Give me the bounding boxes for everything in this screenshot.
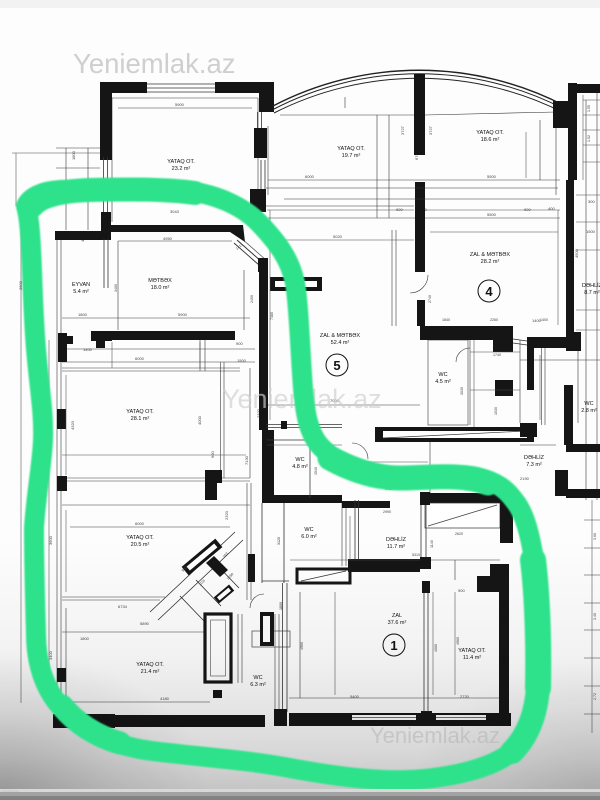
svg-text:1740: 1740 [493,353,501,357]
svg-text:2620: 2620 [455,532,463,536]
svg-text:7130: 7130 [244,455,249,465]
svg-text:6000: 6000 [135,356,145,361]
svg-text:EYVAN: EYVAN [72,282,90,288]
svg-text:4.8 m²: 4.8 m² [292,464,308,470]
svg-text:DƏHLİZ: DƏHLİZ [582,282,600,289]
svg-text:MƏTBƏX: MƏTBƏX [148,278,172,284]
svg-text:3400: 3400 [114,284,118,292]
svg-text:300: 300 [588,199,595,204]
svg-text:ZAL & MƏTBƏX: ZAL & MƏTBƏX [320,333,360,339]
svg-text:ZAL & MƏTBƏX: ZAL & MƏTBƏX [470,252,510,258]
svg-text:18.0 m²: 18.0 m² [151,285,170,291]
svg-text:WC: WC [295,457,304,463]
svg-text:900: 900 [210,451,215,458]
svg-text:3727: 3727 [428,125,433,135]
svg-text:YATAQ OT.: YATAQ OT. [167,159,195,165]
svg-text:YATAQ OT.: YATAQ OT. [126,409,154,415]
svg-text:1840: 1840 [442,318,450,322]
svg-text:7380: 7380 [270,312,274,320]
svg-text:19.7 m²: 19.7 m² [342,153,361,159]
svg-text:1540: 1540 [314,467,318,475]
svg-text:2400: 2400 [250,295,254,303]
svg-text:2990: 2990 [383,510,391,514]
svg-text:28.2 m²: 28.2 m² [481,259,500,265]
svg-text:900: 900 [236,341,243,346]
svg-text:2.8 m²: 2.8 m² [581,408,597,414]
svg-text:7.3 m²: 7.3 m² [526,462,542,468]
svg-text:2260: 2260 [490,318,498,322]
svg-text:1800: 1800 [71,150,76,160]
svg-text:1400: 1400 [540,318,548,322]
svg-text:3043: 3043 [170,209,180,214]
svg-text:5.4 m²: 5.4 m² [73,289,89,295]
svg-text:900: 900 [396,207,403,212]
svg-text:1400: 1400 [83,347,93,352]
svg-text:3030: 3030 [460,387,464,395]
svg-text:23.2 m²: 23.2 m² [172,166,191,172]
svg-text:4.5 m²: 4.5 m² [435,379,451,385]
svg-text:DƏHLİZ: DƏHLİZ [524,454,545,461]
svg-text:8.7 m²: 8.7 m² [584,290,600,296]
svg-text:4000: 4000 [197,415,202,425]
svg-text:4950: 4950 [163,236,173,241]
svg-text:Yeniemlak.az: Yeniemlak.az [370,723,500,748]
svg-text:2190: 2190 [520,476,530,481]
svg-text:4: 4 [485,284,493,299]
svg-text:5: 5 [333,358,340,373]
svg-text:4320: 4320 [70,420,75,430]
svg-text:1.02: 1.02 [587,135,591,142]
svg-text:5020: 5020 [333,234,343,239]
svg-text:WC: WC [304,527,313,533]
svg-text:2320: 2320 [224,510,229,520]
svg-text:5500: 5500 [487,212,497,217]
svg-text:Yeniemlak.az: Yeniemlak.az [73,48,236,79]
svg-text:5900: 5900 [175,102,185,107]
svg-text:YATAQ OT.: YATAQ OT. [476,130,504,136]
svg-text:1.55: 1.55 [587,105,591,112]
svg-text:6000: 6000 [305,174,315,179]
svg-text:18.6 m²: 18.6 m² [481,137,500,143]
svg-text:1500: 1500 [237,358,247,363]
svg-text:WC: WC [438,372,447,378]
svg-text:1800: 1800 [78,312,88,317]
svg-text:3600: 3600 [18,280,23,290]
svg-text:52.4 m²: 52.4 m² [331,340,350,346]
svg-text:2740: 2740 [428,295,432,303]
svg-text:900: 900 [524,207,531,212]
svg-text:YATAQ OT.: YATAQ OT. [337,146,365,152]
svg-text:3727: 3727 [400,125,405,135]
svg-text:WC: WC [584,401,593,407]
svg-text:5500: 5500 [487,174,497,179]
svg-text:6.0 m²: 6.0 m² [301,534,317,540]
svg-text:1500: 1500 [586,229,596,234]
svg-text:28.1 m²: 28.1 m² [131,416,150,422]
svg-text:3.60: 3.60 [593,533,597,540]
svg-text:6000: 6000 [135,521,145,526]
svg-text:5900: 5900 [178,312,188,317]
svg-text:1030: 1030 [494,407,498,415]
